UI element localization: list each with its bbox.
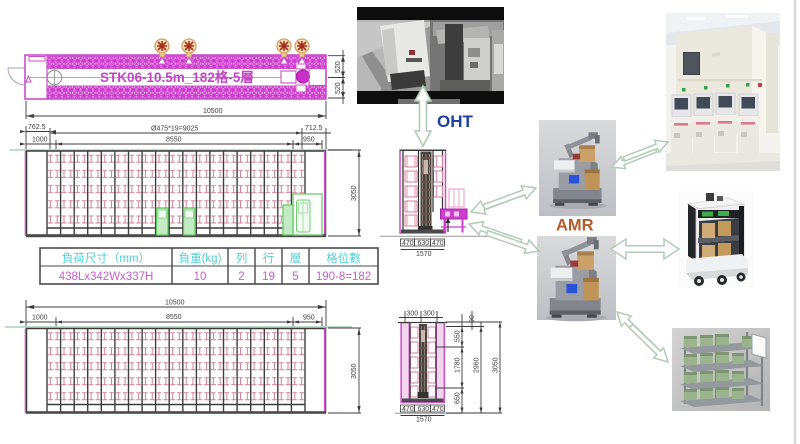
svg-text:300: 300: [423, 311, 435, 318]
svg-text:470: 470: [432, 406, 444, 413]
svg-text:550: 550: [455, 330, 462, 342]
svg-text:層: 層: [290, 252, 302, 265]
svg-text:1570: 1570: [416, 251, 432, 258]
svg-text:10500: 10500: [165, 300, 185, 307]
svg-text:650: 650: [455, 392, 462, 404]
svg-text:OHT: OHT: [437, 112, 474, 131]
svg-text:列: 列: [236, 251, 248, 265]
svg-text:8550: 8550: [166, 314, 182, 321]
svg-text:470: 470: [432, 240, 444, 247]
svg-text:行: 行: [263, 252, 275, 265]
svg-text:630: 630: [418, 406, 430, 413]
svg-text:520: 520: [335, 82, 342, 94]
svg-text:950: 950: [303, 315, 315, 322]
svg-text:負荷尺寸（mm）: 負荷尺寸（mm）: [62, 251, 150, 265]
svg-text:1000: 1000: [32, 137, 48, 144]
svg-text:190-8=182: 190-8=182: [316, 271, 371, 283]
svg-text:負重(kg): 負重(kg): [179, 251, 222, 265]
svg-text:300: 300: [407, 311, 419, 318]
svg-text:8550: 8550: [166, 137, 182, 144]
svg-text:1780: 1780: [455, 357, 462, 373]
svg-text:AMR: AMR: [556, 217, 594, 235]
svg-text:10500: 10500: [203, 108, 223, 115]
svg-text:438Lx342Wx337H: 438Lx342Wx337H: [59, 271, 154, 283]
svg-text:1570: 1570: [416, 417, 432, 424]
svg-text:5: 5: [292, 271, 298, 283]
svg-text:格位數: 格位數: [326, 251, 361, 265]
svg-text:762.5: 762.5: [28, 124, 46, 131]
svg-text:19: 19: [262, 271, 275, 283]
svg-text:712.5: 712.5: [305, 125, 323, 132]
svg-text:630: 630: [418, 240, 430, 247]
svg-text:Ø475*19=9025: Ø475*19=9025: [151, 126, 198, 133]
svg-text:950: 950: [303, 137, 315, 144]
svg-text:90: 90: [469, 315, 476, 323]
svg-text:470: 470: [402, 406, 414, 413]
svg-text:2960: 2960: [474, 357, 481, 373]
svg-text:2: 2: [238, 271, 244, 283]
svg-text:STK06-10.5m_182格-5層: STK06-10.5m_182格-5層: [100, 69, 254, 85]
svg-text:3050: 3050: [351, 363, 358, 379]
svg-text:3050: 3050: [351, 185, 358, 201]
svg-text:520: 520: [335, 61, 342, 73]
svg-text:10: 10: [194, 271, 207, 283]
svg-text:3050: 3050: [493, 357, 500, 373]
svg-text:470: 470: [402, 240, 414, 247]
svg-text:1000: 1000: [32, 315, 48, 322]
